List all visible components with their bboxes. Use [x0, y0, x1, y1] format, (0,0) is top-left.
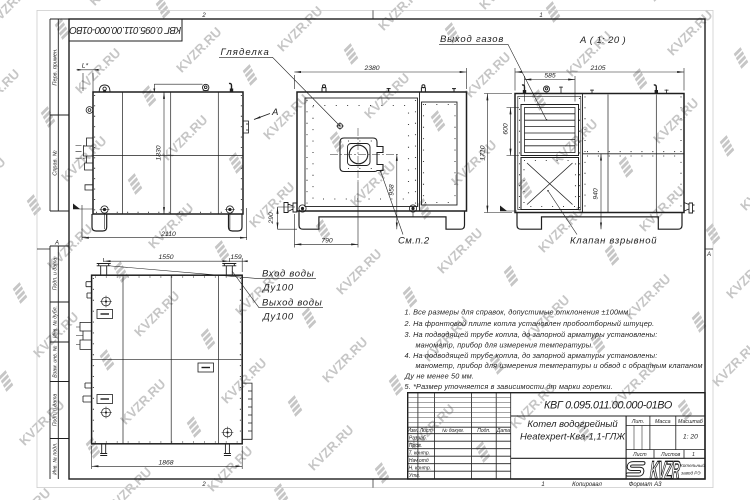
svg-text:Перв. примен.: Перв. примен. — [52, 48, 58, 85]
svg-text:Выход газов: Выход газов — [440, 34, 504, 45]
svg-text:600: 600 — [502, 123, 509, 135]
svg-text:Разраб.: Разраб. — [409, 436, 427, 442]
svg-text:1: 1 — [692, 452, 695, 458]
svg-text:Т. контр.: Т. контр. — [409, 451, 431, 457]
svg-text:Котельный: Котельный — [680, 462, 705, 468]
svg-text:А: А — [271, 107, 278, 118]
svg-text:№ докум.: № докум. — [442, 428, 464, 434]
svg-text:Дата: Дата — [496, 428, 510, 434]
svg-text:290: 290 — [268, 212, 275, 225]
svg-text:1: 1 — [539, 13, 542, 19]
svg-text:1: 1 — [541, 482, 544, 488]
svg-text:Копировал: Копировал — [572, 482, 602, 488]
svg-text:Справ. №: Справ. № — [52, 150, 58, 175]
svg-text:1830: 1830 — [156, 145, 163, 160]
svg-text:Взам. инв. №: Взам. инв. № — [52, 345, 58, 377]
svg-text:Пров.: Пров. — [409, 443, 422, 449]
svg-text:Нач.отд: Нач.отд — [409, 458, 429, 464]
svg-text:159: 159 — [230, 254, 242, 261]
svg-text:Масса: Масса — [655, 419, 671, 425]
svg-text:Heatexpert-Ква-1,1-ГЛЖ: Heatexpert-Ква-1,1-ГЛЖ — [520, 431, 626, 442]
svg-text:Вход воды: Вход воды — [262, 269, 314, 280]
svg-text:Инв. № подл.: Инв. № подл. — [52, 443, 58, 475]
svg-text:Лит.: Лит. — [631, 419, 644, 425]
svg-text:940: 940 — [593, 188, 600, 200]
svg-text:5. *Размер уточняется в зависи: 5. *Размер уточняется в зависимости от м… — [405, 382, 613, 391]
svg-text:1550: 1550 — [158, 254, 173, 261]
svg-text:1868: 1868 — [158, 459, 173, 466]
svg-text:2: 2 — [201, 482, 206, 488]
svg-text:КВГ 0.095.011.00.000-01ВО: КВГ 0.095.011.00.000-01ВО — [69, 24, 181, 35]
svg-text:Инв. № дубл.: Инв. № дубл. — [52, 306, 58, 338]
svg-text:Лист: Лист — [632, 452, 647, 458]
svg-text:Изм.: Изм. — [407, 428, 418, 434]
svg-text:Котел водогрейный: Котел водогрейный — [527, 419, 618, 430]
svg-text:Масштаб: Масштаб — [678, 419, 704, 425]
svg-text:790: 790 — [321, 237, 333, 244]
svg-text:Гляделка: Гляделка — [221, 47, 270, 58]
svg-text:Ду не менее 50 мм.: Ду не менее 50 мм. — [404, 371, 474, 380]
svg-text:Ду100: Ду100 — [262, 312, 294, 323]
svg-text:3. На подводящей трубе котла,: 3. На подводящей трубе котла, до запорно… — [405, 330, 658, 339]
svg-text:А: А — [706, 252, 711, 258]
svg-text:А ( 1: 20 ): А ( 1: 20 ) — [579, 35, 626, 46]
svg-text:2380: 2380 — [363, 65, 379, 72]
svg-text:КВГ 0.095.011.00.000-01ВО: КВГ 0.095.011.00.000-01ВО — [544, 399, 673, 411]
svg-text:завод РЭ: завод РЭ — [680, 471, 701, 476]
svg-text:Утв.: Утв. — [409, 473, 420, 479]
svg-text:Н. контр.: Н. контр. — [409, 466, 432, 472]
svg-text:манометр, прибор для измерения: манометр, прибор для измерения температу… — [416, 340, 594, 349]
svg-text:2105: 2105 — [589, 65, 605, 72]
svg-text:Лист: Лист — [419, 428, 433, 434]
svg-text:1: 20: 1: 20 — [683, 434, 698, 441]
svg-text:А: А — [54, 241, 59, 247]
svg-text:Подп. и дата: Подп. и дата — [52, 258, 58, 291]
svg-text:KVZR: KVZR — [648, 457, 682, 485]
svg-text:4. На подводящей трубе котла,: 4. На подводящей трубе котла, до запорно… — [405, 351, 658, 360]
svg-text:2. На фронтовой плите котла ус: 2. На фронтовой плите котла установлен п… — [404, 319, 655, 328]
svg-text:Выход воды: Выход воды — [262, 298, 322, 309]
svg-text:958: 958 — [388, 184, 395, 196]
svg-text:2: 2 — [201, 13, 206, 19]
svg-text:2110: 2110 — [160, 231, 176, 238]
svg-text:L*: L* — [82, 63, 89, 70]
svg-text:Подп. и дата: Подп. и дата — [52, 394, 58, 427]
svg-text:Ду100: Ду100 — [262, 283, 294, 294]
svg-text:Подп.: Подп. — [477, 428, 490, 434]
svg-text:1710: 1710 — [479, 145, 486, 160]
svg-text:585: 585 — [544, 72, 556, 79]
svg-text:См.п.2: См.п.2 — [398, 236, 430, 247]
svg-text:1. Все размеры для справок, до: 1. Все размеры для справок, допустимые о… — [405, 308, 631, 317]
svg-text:Клапан взрывной: Клапан взрывной — [570, 236, 657, 247]
svg-text:манометр, прибор для измерения: манометр, прибор для измерения температу… — [416, 361, 703, 370]
